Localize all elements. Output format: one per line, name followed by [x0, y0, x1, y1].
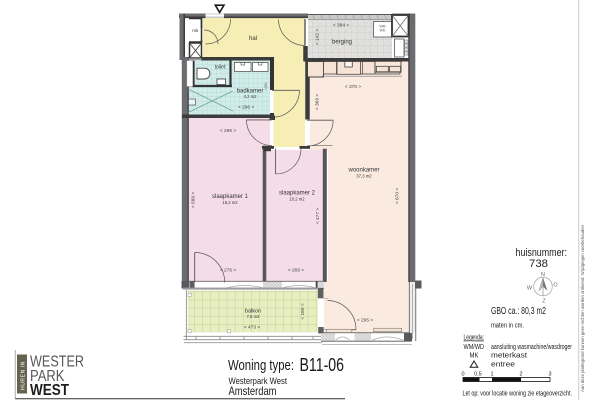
svg-text:< 180 >: < 180 > [300, 303, 306, 319]
svg-text:3: 3 [548, 372, 551, 378]
svg-text:< 589 >: < 589 > [191, 192, 197, 208]
svg-text:Aan deze plattegrond kunnen ge: Aan deze plattegrond kunnen geen rechten… [580, 225, 585, 392]
svg-text:N: N [541, 272, 545, 278]
svg-text:WD: WD [380, 29, 386, 33]
svg-text:< 142 >: < 142 > [315, 29, 321, 45]
svg-text:MK: MK [470, 351, 479, 360]
svg-text:GBO ca.: 80,3 m2: GBO ca.: 80,3 m2 [491, 306, 546, 317]
svg-text:37,3 m2: 37,3 m2 [356, 174, 372, 179]
svg-text:WEST: WEST [30, 382, 69, 399]
svg-text:< 269 >: < 269 > [288, 268, 304, 274]
svg-text:< 295 >: < 295 > [357, 318, 373, 324]
svg-text:Legenda:: Legenda: [464, 333, 485, 342]
svg-text:4,2 m2: 4,2 m2 [244, 94, 257, 99]
svg-text:2: 2 [519, 372, 522, 378]
svg-text:B11-06: B11-06 [300, 355, 345, 375]
svg-text:0,5: 0,5 [474, 372, 482, 378]
svg-text:7,5 m2: 7,5 m2 [247, 314, 260, 319]
svg-text:Let op: voor locatie woning: Let op: voor locatie woning zie etageove… [463, 391, 573, 398]
svg-text:< 670 >: < 670 > [395, 188, 401, 204]
svg-text:O: O [553, 283, 558, 289]
svg-text:< 370 >: < 370 > [345, 84, 361, 90]
svg-text:hal: hal [249, 36, 257, 42]
svg-text:entree: entree [491, 360, 515, 369]
svg-text:16,2 m2: 16,2 m2 [222, 200, 238, 205]
svg-text:0: 0 [461, 372, 464, 378]
svg-text:Woning type:: Woning type: [228, 358, 294, 374]
svg-text:mk: mk [192, 28, 199, 33]
svg-text:meterkast: meterkast [491, 351, 527, 360]
svg-text:berging: berging [332, 40, 352, 46]
svg-text:< 369 >: < 369 > [315, 94, 321, 110]
svg-text:< 296 >: < 296 > [238, 105, 254, 111]
svg-text:Amsterdam: Amsterdam [229, 384, 277, 398]
svg-text:HUREN IN: HUREN IN [21, 361, 27, 390]
svg-text:< 384 >: < 384 > [333, 23, 349, 29]
svg-text:< 477 >: < 477 > [315, 208, 321, 224]
svg-text:10,2 m2: 10,2 m2 [289, 197, 305, 202]
svg-text:W: W [527, 286, 533, 292]
svg-text:toilet: toilet [215, 65, 226, 71]
svg-text:maten in cm.: maten in cm. [491, 323, 524, 330]
svg-text:738: 738 [529, 258, 548, 270]
svg-text:< 473 >: < 473 > [244, 325, 260, 331]
svg-text:< 296 >: < 296 > [220, 128, 236, 134]
svg-text:<35>: <35> [264, 82, 268, 90]
svg-text:1: 1 [490, 372, 493, 378]
